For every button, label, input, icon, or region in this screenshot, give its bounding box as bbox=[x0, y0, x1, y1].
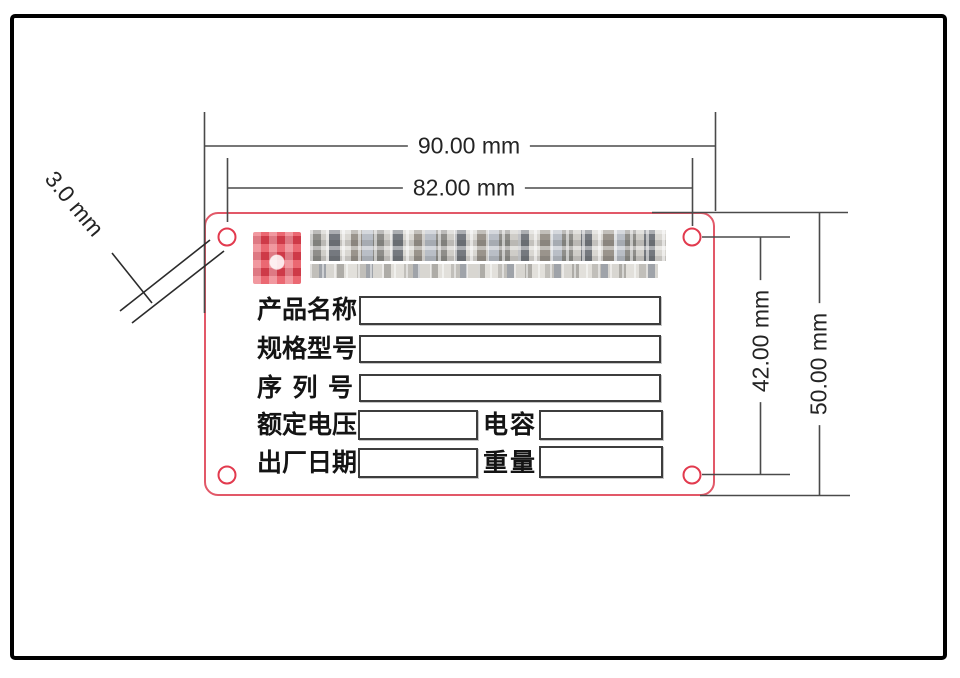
nameplate-drawing: 产品名称 规格型号 序列号 额定电压 电容 出厂日期 重量 bbox=[0, 0, 960, 678]
field-label-serial-number: 序列号 bbox=[257, 374, 353, 402]
dimension-hole-span-height: 42.00 mm bbox=[748, 280, 773, 402]
field-box-capacitance bbox=[539, 410, 663, 440]
dimension-outer-height: 50.00 mm bbox=[806, 303, 831, 425]
field-label-weight: 重量 bbox=[483, 448, 535, 478]
field-label-rated-voltage: 额定电压 bbox=[257, 410, 353, 440]
field-box-product-name bbox=[359, 296, 661, 325]
dimension-outer-width: 90.00 mm bbox=[408, 133, 530, 158]
field-box-spec-model bbox=[359, 335, 661, 363]
company-logo-icon bbox=[253, 232, 301, 284]
redacted-company-subtitle bbox=[310, 264, 658, 278]
label-plate: 产品名称 规格型号 序列号 额定电压 电容 出厂日期 重量 bbox=[204, 212, 715, 496]
field-label-spec-model: 规格型号 bbox=[257, 335, 353, 363]
field-label-product-name: 产品名称 bbox=[257, 296, 353, 325]
field-box-serial-number bbox=[359, 374, 661, 402]
field-box-manufacture-date bbox=[358, 448, 478, 478]
field-label-manufacture-date: 出厂日期 bbox=[257, 448, 353, 478]
field-label-capacitance: 电容 bbox=[483, 410, 535, 440]
field-box-rated-voltage bbox=[358, 410, 478, 440]
dimension-hole-span-width: 82.00 mm bbox=[403, 175, 525, 200]
field-box-weight bbox=[539, 446, 663, 478]
redacted-company-name bbox=[310, 230, 666, 261]
